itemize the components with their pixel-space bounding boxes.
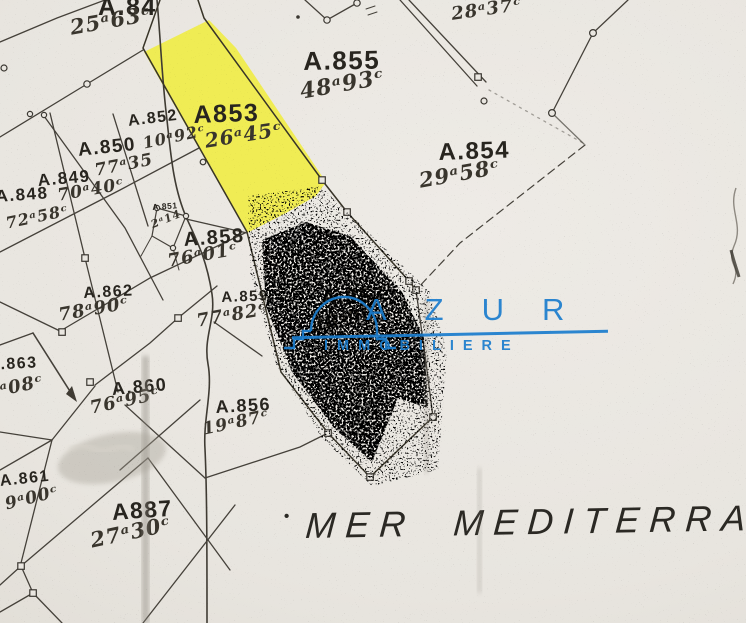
- sea-dot: •: [284, 508, 289, 525]
- survey-dot: [296, 15, 300, 19]
- cadastral-map-scan: A.84 25ᵃ63ᶜ 28ᵃ37ᶜ A.855 48ᵃ93ᶜ A853 26ᵃ…: [0, 0, 746, 623]
- sea-label: MER MEDITERRAN: [304, 497, 746, 548]
- watermark-subtitle: IMMOBILIERE: [324, 338, 520, 354]
- watermark-logo: AZUR IMMOBILIERE: [278, 282, 618, 360]
- watermark-name: AZUR: [366, 292, 602, 328]
- parcel-label-a848: A.848: [0, 183, 49, 207]
- vertex-circle-nodes: [1, 0, 596, 251]
